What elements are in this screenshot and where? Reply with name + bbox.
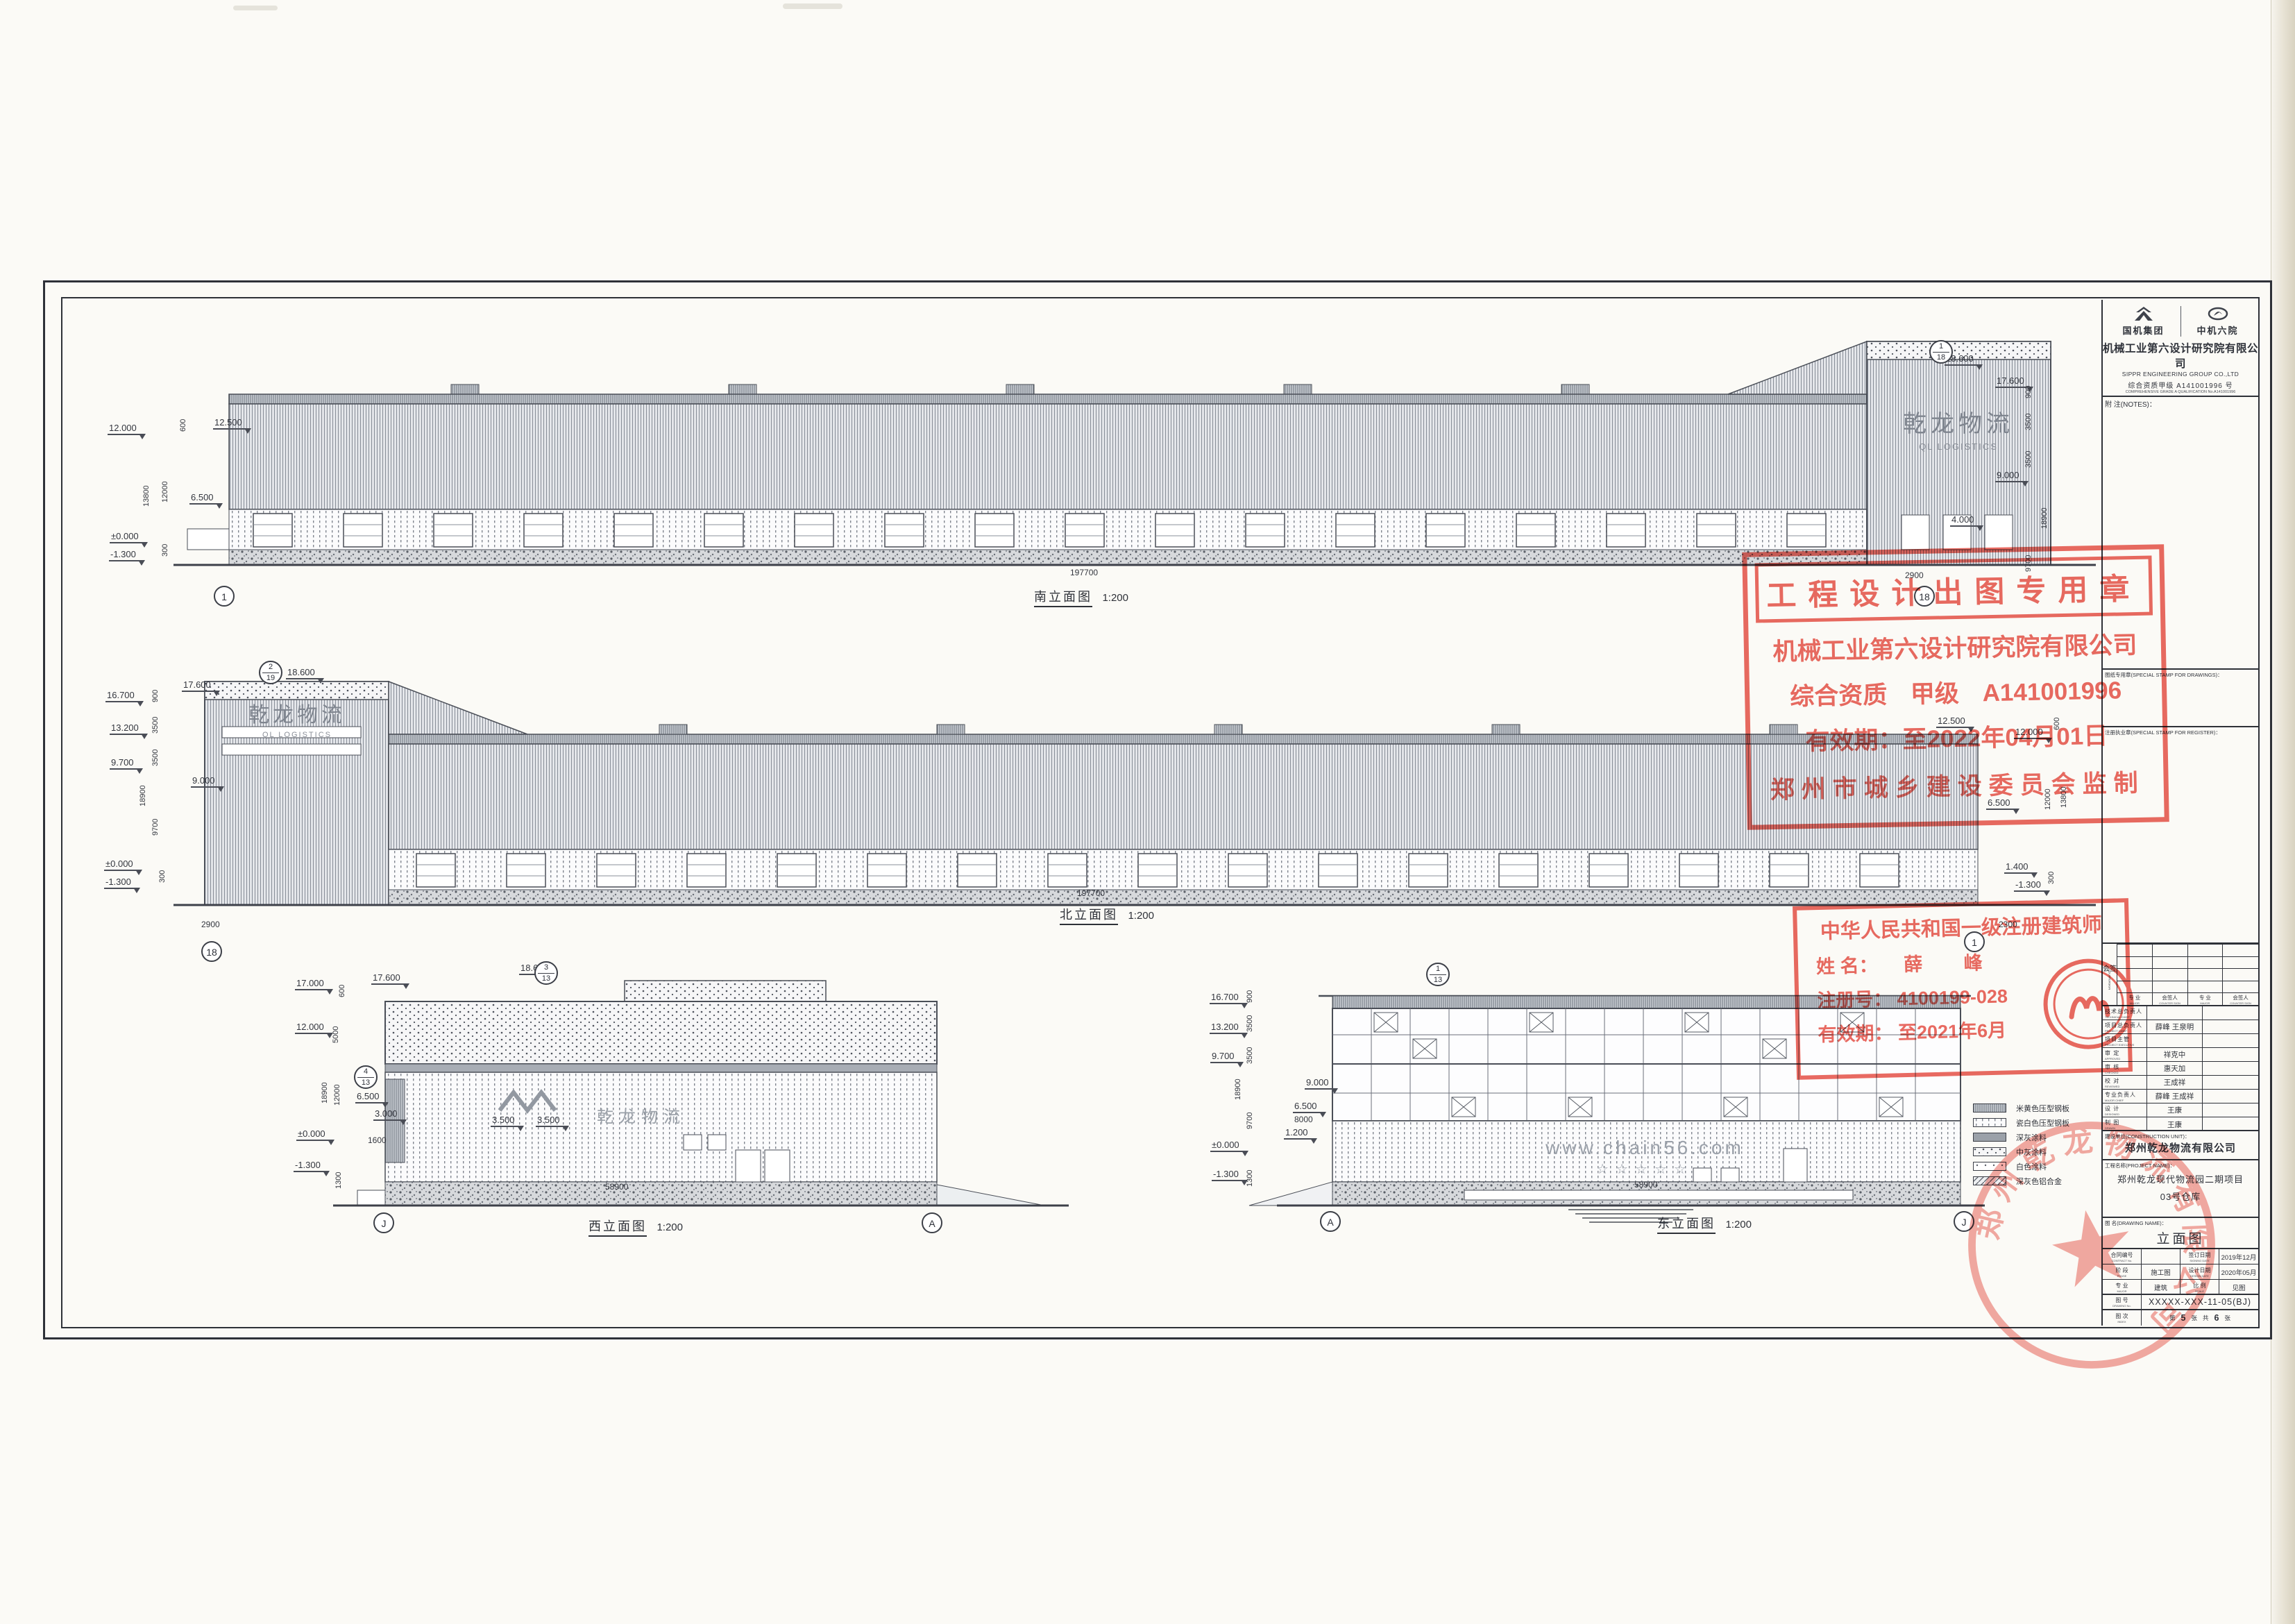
dim-label: 900 (2024, 386, 2033, 398)
dim-label: 18900 (1234, 1079, 1242, 1100)
countersign-header: 专 业 (2199, 994, 2211, 1001)
detail-ref-sheet: 13 (357, 1077, 374, 1088)
dim-label: 3500 (2024, 451, 2033, 468)
elevation-title: 西立面图 1:200 (588, 1217, 683, 1235)
logo-divider (2180, 306, 2181, 337)
elevation-title-text: 东立面图 (1657, 1217, 1716, 1234)
dim-label: 12000 (161, 481, 169, 502)
level-marker: -1.300 (294, 1160, 329, 1172)
level-marker: 12.000 (295, 1022, 332, 1034)
company-header-box: 国机集团 中机六院 机械工业第六设计研究院有限公司 SIPPR ENGINEER… (2103, 300, 2258, 397)
elevation-scale: 1:200 (657, 1221, 683, 1233)
sinomach-logo-icon (2133, 305, 2154, 322)
countersign-grid: 专 业MAJOR 会签人COUNTER SIGN 专 业MAJOR 会签人COU… (2117, 944, 2258, 1005)
dim-label: 18900 (321, 1082, 329, 1103)
overall-dim: 58900 (605, 1182, 628, 1192)
level-marker: -1.300 (109, 550, 144, 561)
overall-dim: 197700 (1070, 568, 1098, 577)
elevation-title: 北立面图 1:200 (1060, 905, 1154, 923)
valid-value: 至2021年6月 (1898, 1020, 2007, 1043)
level-marker: 3.500 (491, 1115, 523, 1127)
design-stamp-company: 机械工业第六设计研究院有限公司 (1748, 625, 2161, 668)
countersign-header-en: COUNTER SIGN (2159, 1001, 2180, 1005)
dim-label: 3500 (1246, 1015, 1254, 1032)
valid-label: 有效期： (1818, 1022, 1893, 1045)
dim-label: 8000 (1294, 1115, 1313, 1124)
level-marker: 18.600 (286, 668, 323, 679)
dim-label: 300 (158, 870, 167, 883)
dim-label: 18900 (2040, 507, 2049, 529)
level-marker: 12.000 (108, 423, 145, 435)
architect-seal-emblem (2052, 967, 2124, 1040)
level-marker: 4.000 (1950, 515, 1983, 527)
countersign-header: 会签人 (2162, 994, 2178, 1001)
dim-label: 9700 (1246, 1113, 1254, 1129)
level-marker: 17.600 (371, 973, 409, 985)
west-elevation: 乾龙物流 17.000 12.000 ±0.000 -1.300 17.600 … (291, 961, 1090, 1267)
design-stamp-issuer: 郑州市城乡建设委员会监制 (1751, 763, 2164, 806)
level-marker: 13.200 (110, 723, 147, 735)
name-label: 姓 名： (1816, 955, 1878, 977)
detail-ref-sheet: 18 (1933, 352, 1949, 363)
countersign-header-en: MAJOR (2200, 1001, 2210, 1005)
level-marker: ±0.000 (110, 532, 147, 543)
qual-grade: 甲级 (1911, 680, 1960, 708)
company-name-en: SIPPR ENGINEERING GROUP CO.,LTD (2103, 371, 2258, 378)
notes-label: 附 注(NOTES)： (2103, 397, 2258, 409)
building-logo-en: QL LOGISTICS (262, 731, 332, 739)
logo-row: 国机集团 中机六院 (2103, 305, 2258, 337)
detail-ref-bubble: 3 13 (534, 961, 558, 985)
detail-ref-bubble: 1 13 (1426, 963, 1450, 986)
level-marker: ±0.000 (104, 859, 142, 871)
architect-stamp-title: 中华人民共和国一级注册建筑师 (1797, 908, 2125, 945)
detail-ref-sheet: 19 (262, 673, 279, 684)
architect-name: 薛 峰 (1904, 952, 2001, 975)
level-marker: 13.200 (1210, 1022, 1247, 1034)
reg-label: 注册号： (1817, 988, 1892, 1011)
company-name-cn: 机械工业第六设计研究院有限公司 (2103, 340, 2258, 371)
elevation-title: 东立面图 1:200 (1657, 1214, 1752, 1232)
west-elevation-drawing: 乾龙物流 (291, 961, 1090, 1267)
elevation-title-text: 北立面图 (1060, 908, 1118, 925)
seal-emblem-icon (2064, 983, 2113, 1026)
level-marker: 6.500 (189, 493, 222, 505)
design-institute-stamp: 工程设计出图专用章 机械工业第六设计研究院有限公司 综合资质 甲级 A14100… (1742, 544, 2169, 830)
countersign-header-en: COUNTER SIGN (2230, 1001, 2251, 1005)
reg-no: 4100199-028 (1897, 986, 2008, 1009)
design-stamp-qualification: 综合资质 甲级 A141001996 (1750, 670, 2162, 713)
elevation-title: 南立面图 1:200 (1034, 587, 1128, 605)
building-logo-en: QL LOGISTICS (1919, 441, 1998, 452)
dim-label: 2900 (201, 920, 220, 929)
elevation-title-text: 南立面图 (1034, 590, 1092, 607)
level-marker: 9.000 (1305, 1078, 1337, 1090)
scan-artifact (233, 6, 278, 10)
detail-ref-no: 2 (262, 662, 279, 673)
dim-label: 1300 (1246, 1170, 1254, 1187)
person-name: 薛峰 王泉明 (2147, 1020, 2203, 1033)
sinomach-logo: 国机集团 (2114, 305, 2174, 337)
level-marker: 17.600 (182, 680, 219, 692)
level-marker: -1.300 (1212, 1169, 1247, 1181)
dim-label: 300 (2047, 872, 2056, 884)
dim-label: 3500 (1246, 1047, 1254, 1064)
detail-ref-sheet: 13 (538, 973, 554, 984)
level-marker: 3.000 (373, 1109, 406, 1121)
dim-label: 1300 (334, 1172, 343, 1189)
logo-label: 中机六院 (2196, 323, 2238, 337)
detail-ref-bubble: 4 13 (354, 1065, 378, 1089)
detail-ref-no: 3 (538, 963, 554, 973)
grid-bubble: 1 (214, 586, 235, 607)
design-stamp-title: 工程设计出图专用章 (1755, 556, 2153, 623)
qualification-cn: 综合资质甲级 A141001996 号 (2103, 380, 2258, 390)
seal-star (2047, 1203, 2137, 1289)
detail-ref-bubble: 2 19 (259, 661, 282, 684)
building-logo-cn: 乾龙物流 (248, 704, 346, 727)
logo-label: 国机集团 (2122, 323, 2164, 337)
wall-sign-text: 乾龙物流 (597, 1108, 686, 1126)
level-marker: 9.000 (1995, 471, 2028, 482)
person-name: 祥克中 (2147, 1048, 2203, 1061)
overall-dim: 197700 (1077, 888, 1105, 898)
role-cn: 校 对 (2105, 1077, 2146, 1085)
qual-label: 综合资质 (1790, 682, 1888, 711)
person-name: 王成祥 (2147, 1076, 2203, 1089)
level-marker: 6.500 (355, 1092, 388, 1103)
dim-label: 9700 (151, 819, 160, 836)
legend-swatch-steel-beige (1973, 1103, 2006, 1113)
level-marker: -1.300 (104, 877, 139, 889)
wall-stars: ☆☆☆☆☆ (1596, 1162, 1693, 1177)
person-name (2147, 1006, 2203, 1020)
level-marker: 9.700 (110, 758, 142, 770)
level-marker: 12.500 (213, 418, 251, 430)
detail-ref-no: 4 (357, 1067, 374, 1077)
level-marker: -1.300 (2014, 880, 2049, 892)
level-marker: ±0.000 (1210, 1140, 1248, 1152)
elevation-title-text: 西立面图 (588, 1219, 647, 1237)
dim-label: 600 (338, 985, 346, 997)
elevation-scale: 1:200 (1102, 592, 1128, 604)
grid-bubble: A (922, 1212, 942, 1233)
dim-label: 12000 (333, 1084, 341, 1106)
level-marker: 17.000 (295, 979, 332, 990)
registered-architect-stamp: 中华人民共和国一级注册建筑师 姓 名： 薛 峰 注册号： 4100199-028… (1793, 898, 2133, 1080)
grid-bubble: J (373, 1212, 394, 1233)
level-marker: 9.700 (1210, 1051, 1243, 1063)
level-marker: 1.200 (1284, 1128, 1316, 1140)
overall-dim: 58900 (1634, 1180, 1657, 1190)
scan-page-edge (2271, 0, 2295, 1624)
level-marker: ±0.000 (296, 1129, 334, 1141)
level-marker: 16.700 (105, 691, 143, 702)
elevation-scale: 1:200 (1128, 910, 1154, 922)
level-marker: 1.400 (2004, 862, 2037, 874)
dim-label: 3500 (2024, 414, 2033, 430)
countersign-header: 会签人 (2233, 994, 2249, 1001)
level-marker: 3.500 (536, 1115, 568, 1127)
grid-bubble: A (1320, 1211, 1341, 1232)
scan-artifact (783, 3, 842, 9)
detail-ref-no: 1 (1933, 341, 1949, 352)
dim-label: 13800 (142, 485, 151, 507)
level-marker: 16.700 (1210, 992, 1247, 1004)
qualification-en: COMPREHENSIVE GRADE A QUALIFICATION No.A… (2103, 390, 2258, 394)
person-name (2147, 1034, 2203, 1047)
elevation-scale: 1:200 (1725, 1219, 1752, 1230)
dim-label: 3500 (151, 750, 160, 766)
design-stamp-validity: 有效期：至2022年04月01日 (1750, 715, 2163, 758)
person-name: 惠天加 (2147, 1062, 2203, 1075)
role-cn: 专业负责人 (2105, 1091, 2146, 1099)
qual-no: A141001996 (1982, 677, 2122, 707)
dim-label: 300 (161, 544, 169, 557)
dim-label: 18900 (139, 785, 147, 806)
dim-label: 1600 (368, 1135, 387, 1145)
personnel-row: 校 对REVIEWED 王成祥 (2103, 1076, 2258, 1090)
dim-label: 3500 (151, 717, 160, 734)
sippr-logo-icon (2208, 305, 2228, 322)
level-marker: 6.500 (1293, 1101, 1326, 1113)
role-en: REVIEWED (2105, 1085, 2146, 1088)
dim-label: 5000 (332, 1026, 340, 1043)
grid-bubble: 18 (201, 941, 222, 962)
dim-label: 900 (151, 690, 160, 702)
wall-website-text: www.chain56.com (1545, 1137, 1744, 1158)
detail-ref-no: 1 (1430, 964, 1446, 974)
detail-ref-sheet: 13 (1430, 974, 1446, 986)
detail-ref-bubble: 1 18 (1929, 340, 1953, 364)
sippr-logo: 中机六院 (2188, 305, 2248, 337)
level-marker: 9.000 (191, 776, 223, 788)
dim-label: 900 (1246, 990, 1254, 1003)
drawing-sheet: 乾龙物流 QL LOGISTICS 12.000 12.500 6.500 ±0… (0, 0, 2295, 1624)
dim-label: 600 (179, 419, 187, 432)
company-round-seal: 郑州乾龙物流有限公司 (1934, 1088, 2249, 1403)
building-logo-cn: 乾龙物流 (1903, 411, 2014, 437)
